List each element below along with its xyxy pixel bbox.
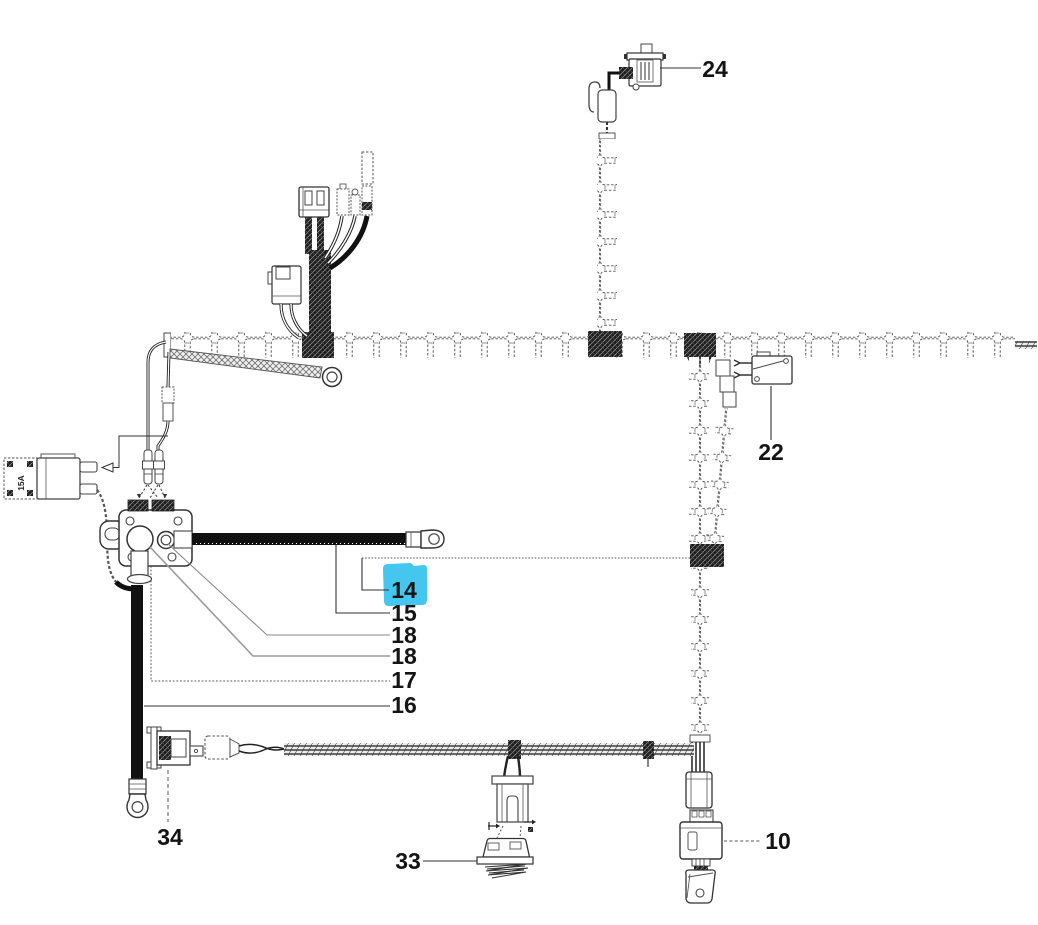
harness-vertical-24	[597, 133, 617, 331]
loom-clip	[643, 741, 654, 759]
part-number-10[interactable]: 10	[765, 828, 791, 854]
rubber-sleeve	[598, 90, 616, 122]
component-10-relay	[680, 772, 722, 903]
stud-boss	[127, 526, 153, 552]
tape-junction-tee	[684, 333, 716, 357]
harness-vertical-right	[689, 357, 736, 772]
component-33-switch	[477, 776, 536, 878]
connector-tab	[80, 484, 97, 494]
relay-tab	[190, 746, 203, 756]
part-number-34[interactable]: 34	[157, 824, 183, 850]
callout-22[interactable]: 22	[758, 386, 784, 465]
leader-line-dotted	[151, 566, 390, 681]
terminal-fork	[734, 372, 752, 378]
tape-junction-mid	[588, 331, 622, 357]
bolt-hole	[168, 553, 176, 561]
part-number-18b[interactable]: 18	[391, 643, 417, 669]
braided-stub-left	[305, 214, 312, 254]
component-34-relay	[147, 727, 287, 769]
spring-coil	[485, 864, 528, 878]
mating-connector	[205, 736, 230, 759]
pigtail-connector	[619, 67, 633, 79]
connector-2pin	[299, 187, 329, 217]
connector-side	[268, 266, 301, 304]
wiring-harness-diagram: 15A	[0, 0, 1038, 925]
terminal-fork	[734, 360, 752, 366]
mounting-bracket-assembly	[100, 500, 192, 584]
bottom-loom	[284, 740, 694, 777]
harness-clip	[716, 360, 736, 407]
lug-neck	[174, 531, 192, 548]
crimp-ferrule	[129, 779, 146, 794]
braided-trunk	[309, 250, 331, 338]
battery-cable-vertical	[127, 585, 148, 818]
housing-flange	[492, 776, 533, 784]
assembly-arrow-icon	[524, 820, 536, 832]
terminal-block	[128, 500, 148, 511]
component-24-switch	[589, 44, 666, 136]
battery-cable-horizontal	[192, 530, 444, 548]
harness-diagonal	[705, 407, 735, 544]
bolt-hole	[174, 517, 182, 525]
pointer-arrow	[102, 463, 113, 472]
leader-line	[168, 544, 390, 635]
callout-33[interactable]: 33	[395, 848, 477, 874]
mount-bracket	[151, 727, 157, 769]
tape-junction-merge	[690, 544, 724, 567]
callout-18a[interactable]: 18	[168, 544, 417, 648]
part-number-22[interactable]: 22	[758, 439, 784, 465]
braided-stub-right	[317, 214, 324, 254]
switch-nipple	[633, 84, 639, 90]
terminal-sleeved	[362, 186, 372, 215]
fuse-sleeve-bottom	[163, 403, 173, 421]
leader-line	[336, 545, 390, 613]
slot-hole	[105, 528, 120, 540]
callout-17[interactable]: 17	[151, 566, 417, 693]
assembly-arrow-icon	[488, 822, 500, 830]
terminal-bullet	[351, 189, 360, 215]
connector-nose	[230, 739, 239, 757]
bolt-hole	[126, 517, 134, 525]
top-connector	[686, 772, 712, 808]
part-number-24[interactable]: 24	[702, 56, 728, 82]
drop-wire	[518, 756, 520, 777]
connector-tab	[80, 462, 97, 472]
callout-16[interactable]: 16	[144, 692, 417, 718]
parts-diagram-page: 15A	[0, 0, 1038, 925]
body-slot	[688, 832, 697, 850]
callout-18b[interactable]: 18	[150, 547, 417, 669]
bullet-terminal	[154, 450, 165, 484]
harness-end-cap	[690, 735, 710, 742]
fuse-sleeve-top	[162, 387, 174, 403]
part-number-17[interactable]: 17	[391, 667, 417, 693]
callout-24[interactable]: 24	[660, 56, 728, 82]
fuse-rating-label: 15A	[16, 475, 26, 491]
drop-wire	[504, 756, 508, 777]
center-branch	[268, 152, 373, 338]
callout-14-selected[interactable]: 14	[362, 558, 692, 606]
harness-wire-stub	[1015, 341, 1037, 349]
callout-34[interactable]: 34	[157, 770, 183, 850]
part-number-16[interactable]: 16	[391, 692, 417, 718]
arrowhead	[163, 494, 167, 498]
tube-flange	[128, 575, 152, 584]
callout-10[interactable]: 10	[724, 828, 791, 854]
pigtail-wire	[609, 73, 619, 92]
left-drop-wires	[137, 342, 174, 498]
bullet-terminal	[143, 450, 154, 484]
switch-plate	[477, 857, 533, 864]
part-number-33[interactable]: 33	[395, 848, 421, 874]
insulating-sleeve	[362, 152, 373, 184]
terminal-spade	[337, 184, 349, 215]
connector-body	[37, 458, 80, 499]
wire-core	[291, 304, 307, 336]
terminal-block	[152, 500, 174, 511]
harness-lower	[691, 567, 709, 737]
crimp-ferrule	[406, 532, 421, 547]
relay-body	[680, 822, 722, 859]
